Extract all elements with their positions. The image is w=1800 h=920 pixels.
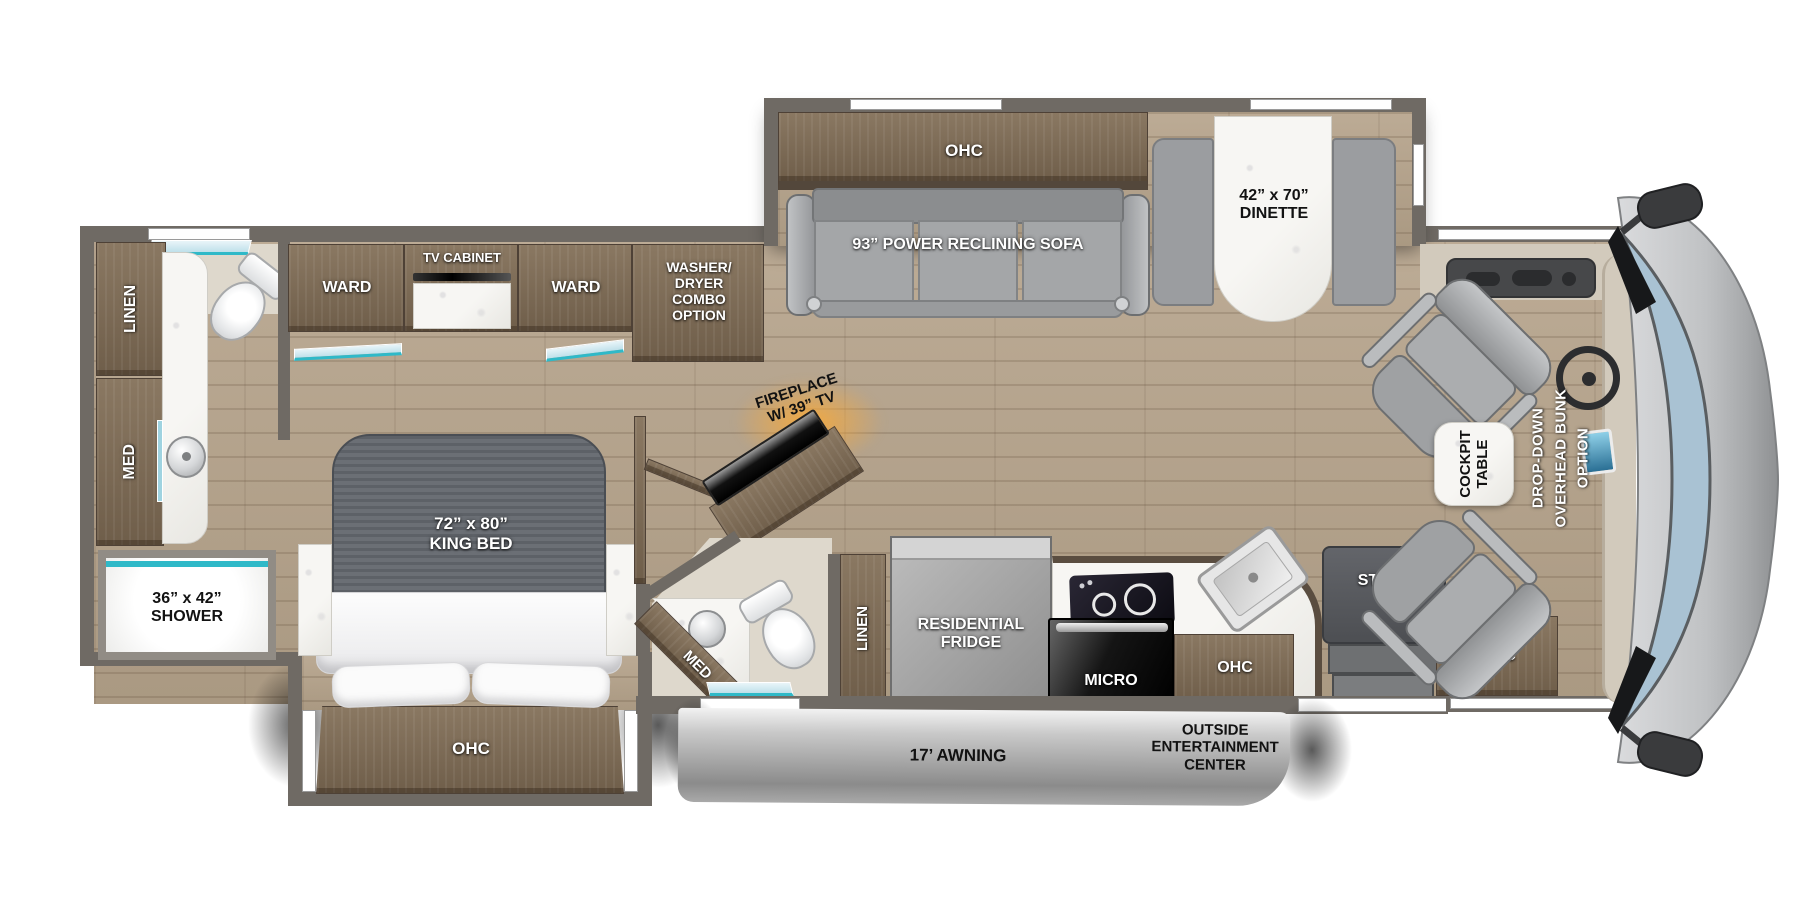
pocket-door <box>634 416 646 584</box>
wall-left <box>80 226 94 666</box>
window <box>624 710 638 792</box>
overhead-bunk-label: DROP-DOWN OVERHEAD BUNK OPTION <box>1527 338 1595 578</box>
wall <box>288 792 652 806</box>
ward-cabinet-left: WARD <box>288 244 404 332</box>
ward-left-label: WARD <box>289 279 405 297</box>
sofa-back <box>812 188 1124 224</box>
rear-med-label: MED <box>121 444 139 480</box>
dinette-bench <box>1332 138 1396 306</box>
bed-pillow <box>331 662 470 709</box>
sofa-cushion <box>814 220 914 304</box>
sofa-knob <box>806 296 822 312</box>
dinette-table: 42” x 70” DINETTE <box>1214 116 1332 322</box>
sofa-front <box>812 300 1124 318</box>
tv-cabinet: TV CABINET <box>404 244 518 332</box>
mid-linen-label: LINEN <box>854 606 871 651</box>
micro-label: MICRO <box>1050 672 1172 690</box>
window <box>1413 144 1424 206</box>
washer-dryer-label: WASHER/ DRYER COMBO OPTION <box>633 259 765 323</box>
window-sill <box>706 682 793 696</box>
tv-cabinet-label: TV CABINET <box>405 251 519 266</box>
window <box>148 228 250 240</box>
cockpit-table: COCKPIT TABLE <box>1434 422 1514 506</box>
king-bed-mattress: 72” x 80” KING BED <box>332 434 606 614</box>
sofa-cushion <box>1022 220 1122 304</box>
residential-fridge: RESIDENTIAL FRIDGE <box>890 536 1052 712</box>
wall <box>764 98 778 246</box>
awning-label: 17’ AWNING <box>848 745 1068 766</box>
sofa-ohc-label: OHC <box>779 141 1149 161</box>
tv <box>413 273 511 281</box>
dash-vent <box>1512 270 1552 286</box>
burner <box>1123 583 1156 616</box>
ward-cabinet-right: WARD <box>518 244 632 332</box>
faucet <box>182 452 191 461</box>
cockpit-table-label: COCKPIT TABLE <box>1457 422 1492 506</box>
knob <box>1087 580 1092 585</box>
sofa-knob <box>1114 296 1130 312</box>
kitchen-ohc-cabinet: OHC <box>1174 634 1294 702</box>
fridge-label: RESIDENTIAL FRIDGE <box>892 616 1050 653</box>
accent-strip <box>157 420 163 502</box>
wall <box>828 554 840 702</box>
bed-pillow <box>471 662 610 709</box>
sofa-label: 93” POWER RECLINING SOFA <box>816 236 1120 254</box>
rear-bath-med-cabinet: MED <box>96 378 164 546</box>
ward-right-label: WARD <box>519 279 633 297</box>
shower-glass <box>106 561 268 567</box>
king-bed-label: 72” x 80” KING BED <box>334 514 608 553</box>
wall <box>638 652 652 806</box>
rear-bath-linen-cabinet: LINEN <box>96 242 166 376</box>
washer-dryer-cabinet: WASHER/ DRYER COMBO OPTION <box>632 244 764 362</box>
knob <box>1079 583 1084 588</box>
shower: 36” x 42” SHOWER <box>98 550 276 660</box>
bed-comforter <box>316 592 622 674</box>
rear-linen-label: LINEN <box>122 285 140 333</box>
nightstand <box>298 544 332 656</box>
window <box>1250 99 1392 110</box>
window <box>302 710 316 792</box>
wall <box>288 652 302 806</box>
side-mirror-bottom <box>1635 729 1706 779</box>
sofa: 93” POWER RECLINING SOFA <box>786 188 1150 320</box>
sofa-cushion <box>918 220 1018 304</box>
tv-cabinet-top <box>413 283 511 329</box>
vanity-counter <box>162 252 208 544</box>
side-mirror-top <box>1635 181 1706 231</box>
awning-bar: 17’ AWNING OUTSIDE ENTERTAINMENT CENTER <box>678 708 1291 806</box>
dinette-label: 42” x 70” DINETTE <box>1215 187 1333 224</box>
bed-ohc-cabinet: OHC <box>316 706 624 794</box>
entertainment-label: OUTSIDE ENTERTAINMENT CENTER <box>1140 721 1290 774</box>
micro-handle <box>1056 623 1168 632</box>
dinette-bench <box>1152 138 1214 306</box>
rv-floor-plan: OHC LINEN MED 36” x 42” SHOWER WARD TV C… <box>0 0 1800 920</box>
kitchen-ohc-label: OHC <box>1175 659 1295 677</box>
mid-bath-linen-cabinet: LINEN <box>840 554 886 702</box>
shower-label: 36” x 42” SHOWER <box>106 590 268 627</box>
sofa-ohc-cabinet: OHC <box>778 112 1148 190</box>
bed-ohc-label: OHC <box>317 739 625 759</box>
window <box>850 99 1002 110</box>
microwave: MICRO <box>1048 618 1174 706</box>
overhead-bunk-label-box: DROP-DOWN OVERHEAD BUNK OPTION <box>1506 338 1616 578</box>
fridge-top <box>892 538 1050 560</box>
burner <box>1092 592 1117 617</box>
